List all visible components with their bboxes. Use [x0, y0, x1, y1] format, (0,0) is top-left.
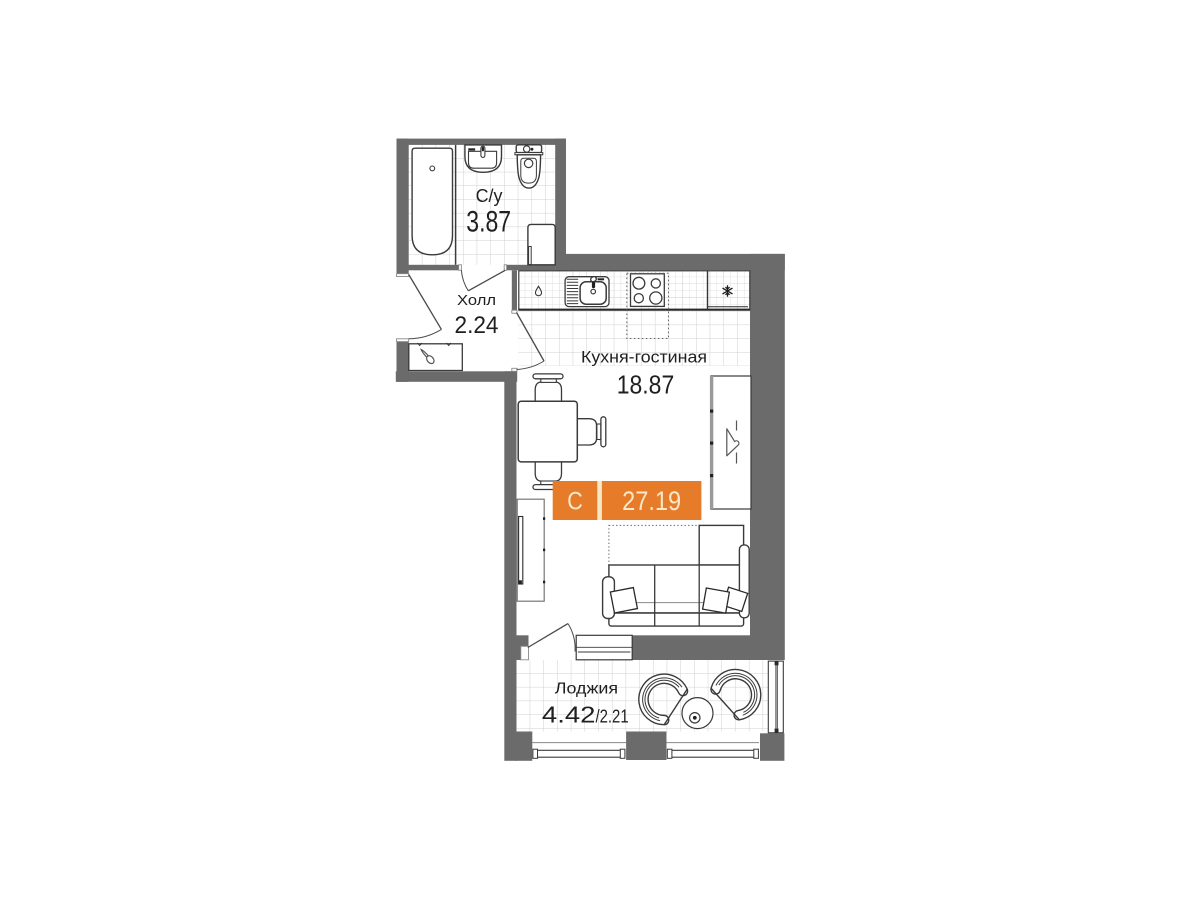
svg-text:С/у: С/у	[476, 185, 504, 206]
svg-text:Лоджия: Лоджия	[555, 680, 618, 697]
svg-text:27.19: 27.19	[622, 486, 681, 516]
svg-text:С: С	[567, 488, 583, 516]
svg-text:/2.21: /2.21	[596, 705, 629, 726]
svg-text:3.87: 3.87	[466, 205, 511, 238]
svg-text:2.24: 2.24	[455, 312, 499, 339]
svg-text:Кухня-гостиная: Кухня-гостиная	[581, 349, 707, 367]
svg-text:4.42: 4.42	[542, 701, 596, 727]
svg-text:18.87: 18.87	[617, 369, 675, 399]
svg-text:Холл: Холл	[457, 292, 496, 309]
